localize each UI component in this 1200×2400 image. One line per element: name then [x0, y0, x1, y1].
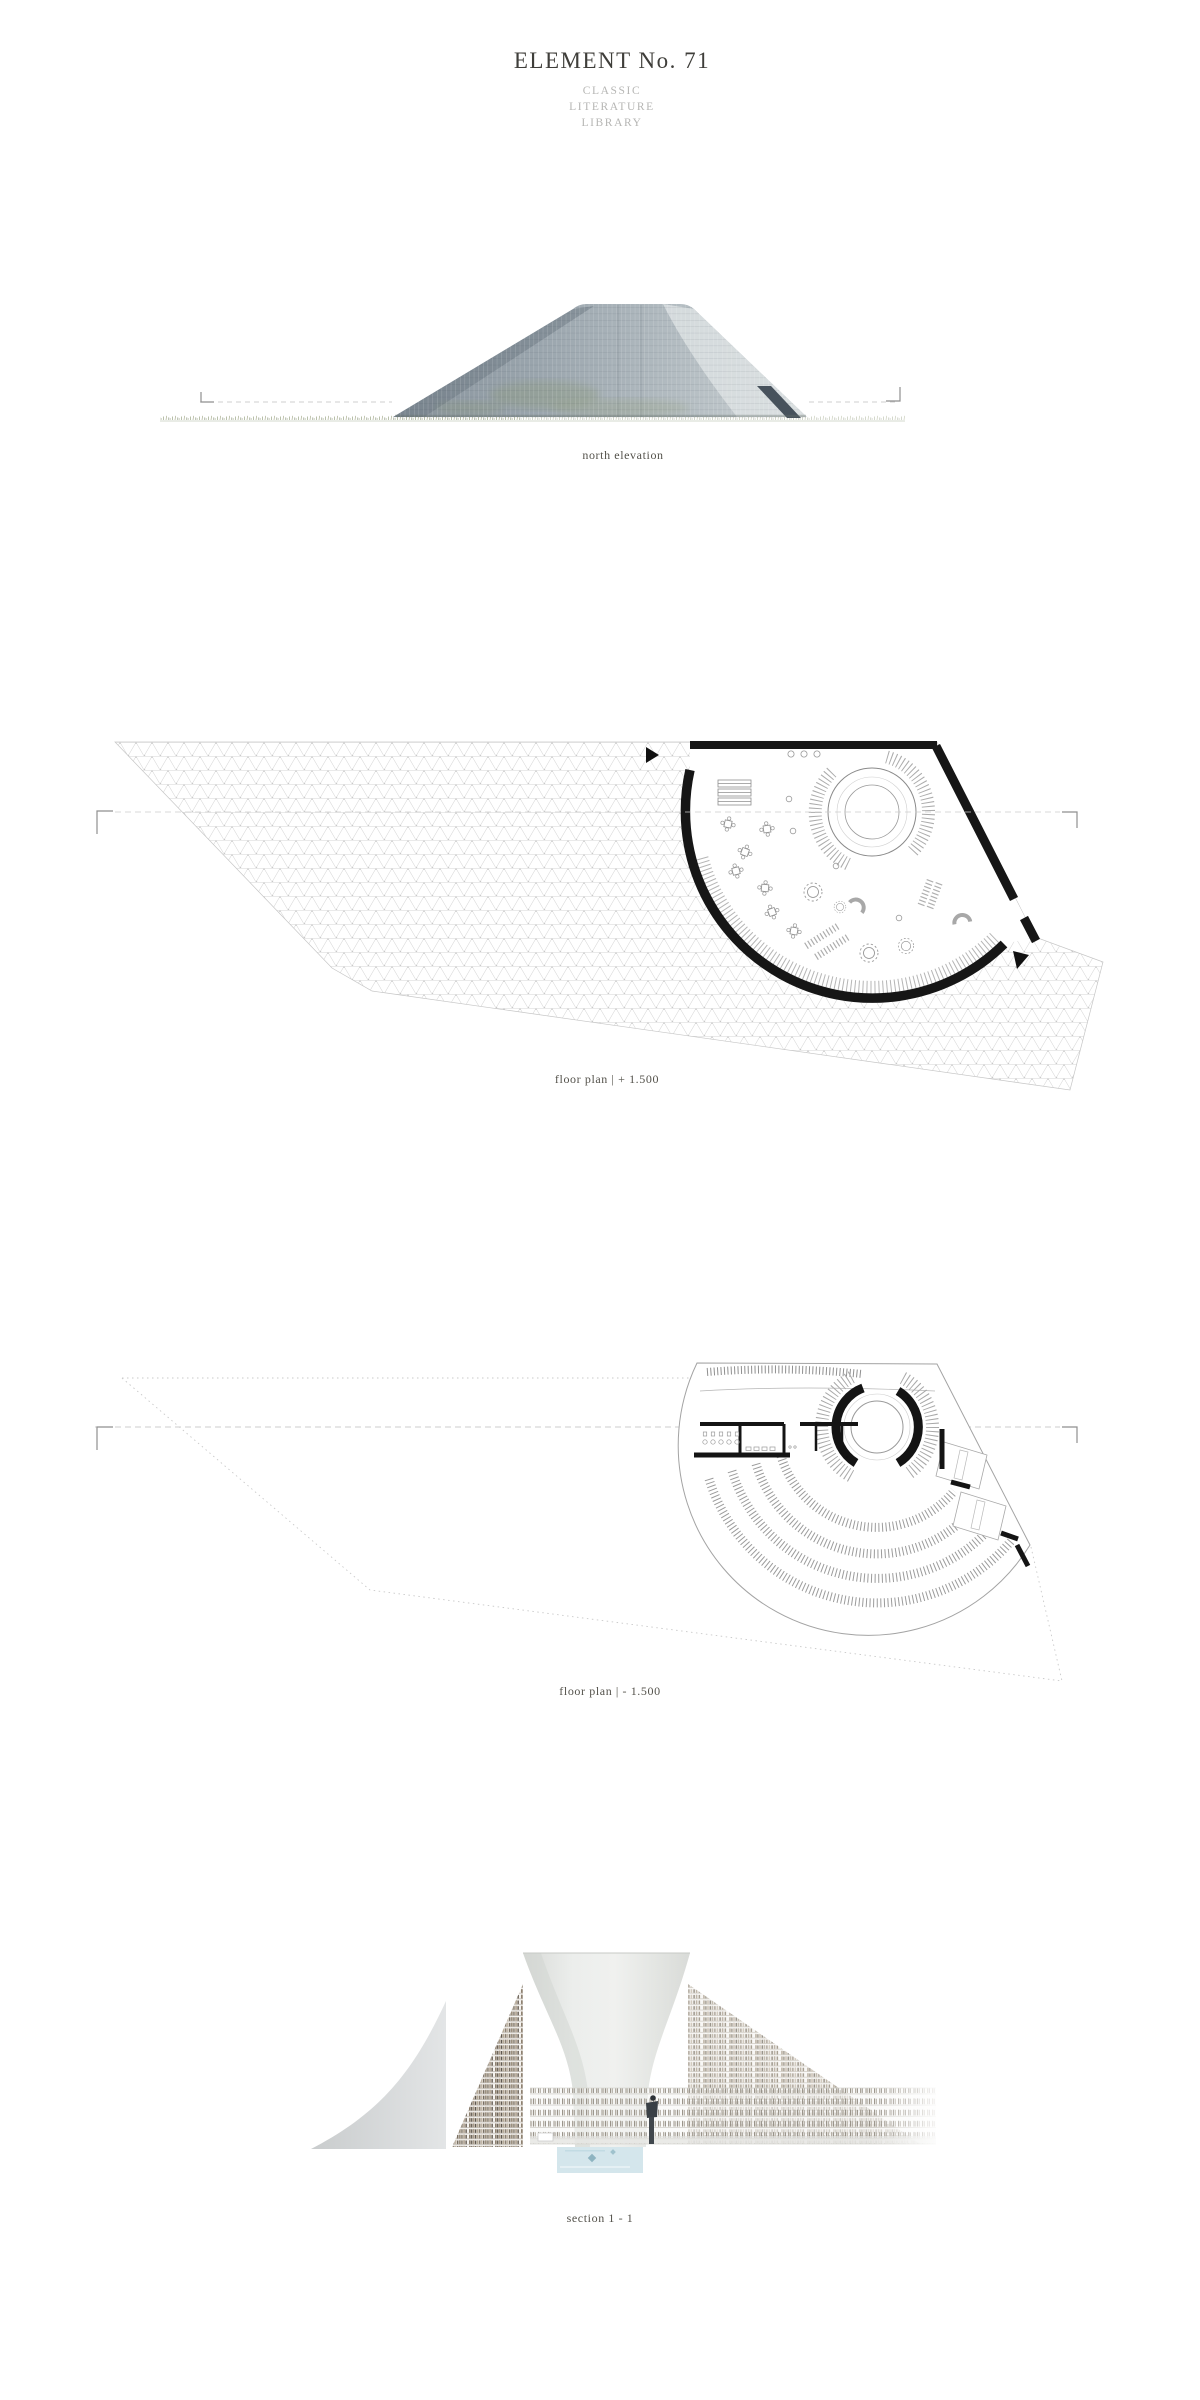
- corner-mark-left: [97, 811, 113, 834]
- page-subtitle: CLASSIC LITERATURE LIBRARY: [312, 83, 912, 131]
- drawing-caption: section 1 - 1: [567, 2211, 634, 2226]
- floor-plan-lower-figure: [0, 1340, 1200, 1720]
- corner-mark-left: [201, 392, 214, 402]
- drawing-caption: floor plan | + 1.500: [555, 1072, 659, 1087]
- north-elevation-drawing: [0, 290, 1200, 465]
- drawing-caption: north elevation: [582, 448, 663, 463]
- facade-grid-texture: [390, 300, 810, 425]
- elevation-building-mound: [390, 300, 810, 425]
- shell-wedge: [311, 2001, 446, 2149]
- section-drawing: [0, 1945, 1200, 2180]
- floor-plan-lower-drawing: [0, 1340, 1200, 1720]
- band-detail: [538, 2133, 553, 2141]
- corner-mark-left: [97, 1427, 113, 1450]
- corner-mark-right: [886, 387, 900, 401]
- floor-plan-upper-figure: [0, 720, 1200, 1110]
- page-title: ELEMENT No. 71: [312, 48, 912, 74]
- section-figure: [0, 1945, 1200, 2180]
- floor-plan-upper-drawing: [0, 720, 1200, 1110]
- presentation-board: ELEMENT No. 71 CLASSIC LITERATURE LIBRAR…: [0, 0, 1200, 2400]
- drawing-caption: floor plan | - 1.500: [559, 1684, 660, 1699]
- bookshelf-triangle-left: [452, 1984, 523, 2147]
- page-header: ELEMENT No. 71 CLASSIC LITERATURE LIBRAR…: [312, 48, 912, 131]
- subtitle-line-3: LIBRARY: [312, 115, 912, 131]
- top-wall: [690, 741, 937, 749]
- pool: [557, 2147, 643, 2173]
- corner-mark-right: [1062, 812, 1077, 828]
- subtitle-line-2: LITERATURE: [312, 99, 912, 115]
- corner-mark-right: [1062, 1427, 1077, 1443]
- subtitle-line-1: CLASSIC: [312, 83, 912, 99]
- north-elevation-figure: [0, 290, 1200, 465]
